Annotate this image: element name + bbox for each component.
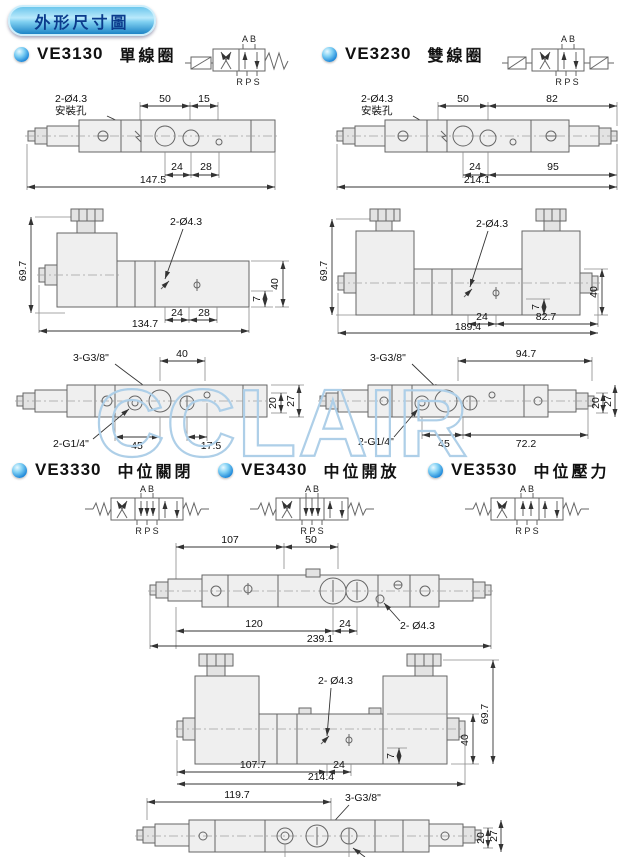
- section-title-ve3130: VE3130 單線圈: [14, 42, 177, 66]
- ve3230-bottom-view-drawing: 3-G3/8" 94.7 20 27 2-G1/4" 45 72.2: [318, 347, 618, 453]
- dim-7: 7: [251, 296, 263, 302]
- dim-15: 15: [198, 93, 210, 105]
- dim-50: 50: [159, 93, 171, 105]
- model-type-label: 中位關閉: [118, 458, 194, 482]
- dim-7: 7: [385, 753, 397, 759]
- ve3130-valve-symbol: A B R P S: [185, 33, 305, 87]
- page-title-text: 外形尺寸圖: [34, 9, 129, 33]
- dim-120: 120: [245, 618, 263, 630]
- ve3130-bottom-view-drawing: 3-G3/8" 40 20 27 2-G1/4" 45 17.5: [15, 347, 310, 453]
- dim-20: 20: [475, 832, 487, 844]
- symbol-ports-top: A B: [561, 34, 575, 44]
- port-note-g14: 2-G1/4": [358, 436, 394, 448]
- model-number: VE3430: [241, 460, 308, 480]
- dim-28: 28: [198, 307, 210, 319]
- dim-27: 27: [285, 395, 297, 407]
- dim-27: 27: [602, 395, 614, 407]
- dim-overall: 214.1: [464, 174, 490, 186]
- dim-107-7: 107.7: [240, 759, 266, 771]
- dim-overall: 239.1: [307, 633, 333, 645]
- bullet-icon: [322, 47, 337, 62]
- symbol-ports-top: A B: [242, 34, 256, 44]
- section-title-ve3230: VE3230 雙線圈: [322, 42, 485, 66]
- bullet-icon: [12, 463, 27, 478]
- three-position-front-view-drawing: 2- Ø4.3 7 40 69.7 107.7 24 214.4: [135, 652, 505, 787]
- dim-28: 28: [200, 161, 212, 173]
- dim-27: 27: [488, 830, 500, 842]
- model-type-label: 中位壓力: [534, 458, 610, 482]
- model-number: VE3230: [345, 44, 412, 64]
- symbol-ports-bottom: R P S: [515, 526, 538, 536]
- ve3230-top-view-drawing: 2-Ø4.3 安裝孔 50 82 24 95 214.1: [335, 90, 619, 195]
- dim-72-2: 72.2: [516, 438, 537, 450]
- dim-height: 69.7: [479, 704, 491, 725]
- hole-note2: 安裝孔: [361, 104, 393, 117]
- ve3430-valve-symbol: A B R P S: [250, 484, 374, 536]
- model-type-label: 單線圈: [120, 42, 177, 66]
- dim-overall: 214.4: [308, 771, 334, 783]
- dim-height: 69.7: [17, 261, 29, 282]
- dim-17-5: 17.5: [201, 440, 222, 452]
- section-title-ve3430: VE3430 中位開放: [218, 458, 400, 482]
- model-number: VE3530: [451, 460, 518, 480]
- catalog-page: 外形尺寸圖 VE3130 單線圈 VE3230 雙線圈 A B R P S: [0, 0, 619, 857]
- section-title-ve3530: VE3530 中位壓力: [428, 458, 610, 482]
- dim-20: 20: [267, 397, 279, 409]
- symbol-ports-top: A B: [305, 484, 319, 494]
- port-note-g14: 2-G1/4": [53, 438, 89, 450]
- dim-95: 95: [547, 161, 559, 173]
- bullet-icon: [218, 463, 233, 478]
- symbol-ports-bottom: R P S: [555, 77, 578, 87]
- model-type-label: 中位開放: [324, 458, 400, 482]
- ve3530-valve-symbol: A B R P S: [465, 484, 589, 536]
- dim-82-7: 82.7: [536, 311, 557, 323]
- dim-82: 82: [546, 93, 558, 105]
- dim-40: 40: [269, 278, 281, 290]
- bullet-icon: [14, 47, 29, 62]
- model-type-label: 雙線圈: [428, 42, 485, 66]
- symbol-ports-top: A B: [520, 484, 534, 494]
- dim-7: 7: [530, 304, 542, 310]
- dim-overall: 134.7: [132, 318, 158, 330]
- port-note-g38: 3-G3/8": [73, 352, 109, 364]
- port-note-g38: 3-G3/8": [345, 792, 381, 804]
- dim-50: 50: [457, 93, 469, 105]
- dim-24: 24: [171, 307, 183, 319]
- ve3230-valve-symbol: A B R P S: [500, 33, 619, 87]
- dim-24: 24: [333, 759, 345, 771]
- section-title-ve3330: VE3330 中位關閉: [12, 458, 194, 482]
- symbol-ports-top: A B: [140, 484, 154, 494]
- three-position-top-view-drawing: 107 50 2- Ø4.3 120 24 239.1: [148, 533, 493, 651]
- dim-50: 50: [305, 534, 317, 546]
- page-title: 外形尺寸圖: [8, 5, 156, 36]
- ve3330-valve-symbol: A B R P S: [85, 484, 209, 536]
- dim-45: 45: [438, 438, 450, 450]
- model-number: VE3330: [35, 460, 102, 480]
- dim-24: 24: [171, 161, 183, 173]
- dim-overall: 147.5: [140, 174, 166, 186]
- symbol-ports-bottom: R P S: [236, 77, 259, 87]
- dim-20: 20: [590, 397, 602, 409]
- hole-note: 2-Ø4.3: [476, 218, 508, 230]
- dim-24: 24: [339, 618, 351, 630]
- dim-40: 40: [176, 348, 188, 360]
- hole-note: 2-Ø4.3: [170, 216, 202, 228]
- dim-45: 45: [131, 440, 143, 452]
- port-note-g38: 3-G3/8": [370, 352, 406, 364]
- dim-119-7: 119.7: [224, 789, 250, 801]
- ve3130-top-view-drawing: 2-Ø4.3 安裝孔 50 15 24 28 147.5: [25, 90, 310, 195]
- hole-note2: 安裝孔: [55, 104, 87, 117]
- ve3130-front-view-drawing: 69.7 2-Ø4.3 7 40 24 28 134.7: [15, 205, 305, 335]
- three-position-bottom-view-drawing: 119.7 3-G3/8" 20 27: [135, 790, 505, 857]
- hole-note: 2- Ø4.3: [318, 675, 353, 687]
- model-number: VE3130: [37, 44, 104, 64]
- dim-94-7: 94.7: [516, 348, 537, 360]
- bullet-icon: [428, 463, 443, 478]
- dim-overall: 189.4: [455, 321, 481, 333]
- hole-note: 2- Ø4.3: [400, 620, 435, 632]
- hole-note: 2-Ø4.3: [361, 93, 393, 105]
- dim-height: 69.7: [318, 261, 330, 282]
- ve3230-front-view-drawing: 69.7 2-Ø4.3 7 40 24 82.7 189.4: [318, 205, 618, 335]
- hole-note: 2-Ø4.3: [55, 93, 87, 105]
- dim-107: 107: [221, 534, 239, 546]
- dim-24: 24: [469, 161, 481, 173]
